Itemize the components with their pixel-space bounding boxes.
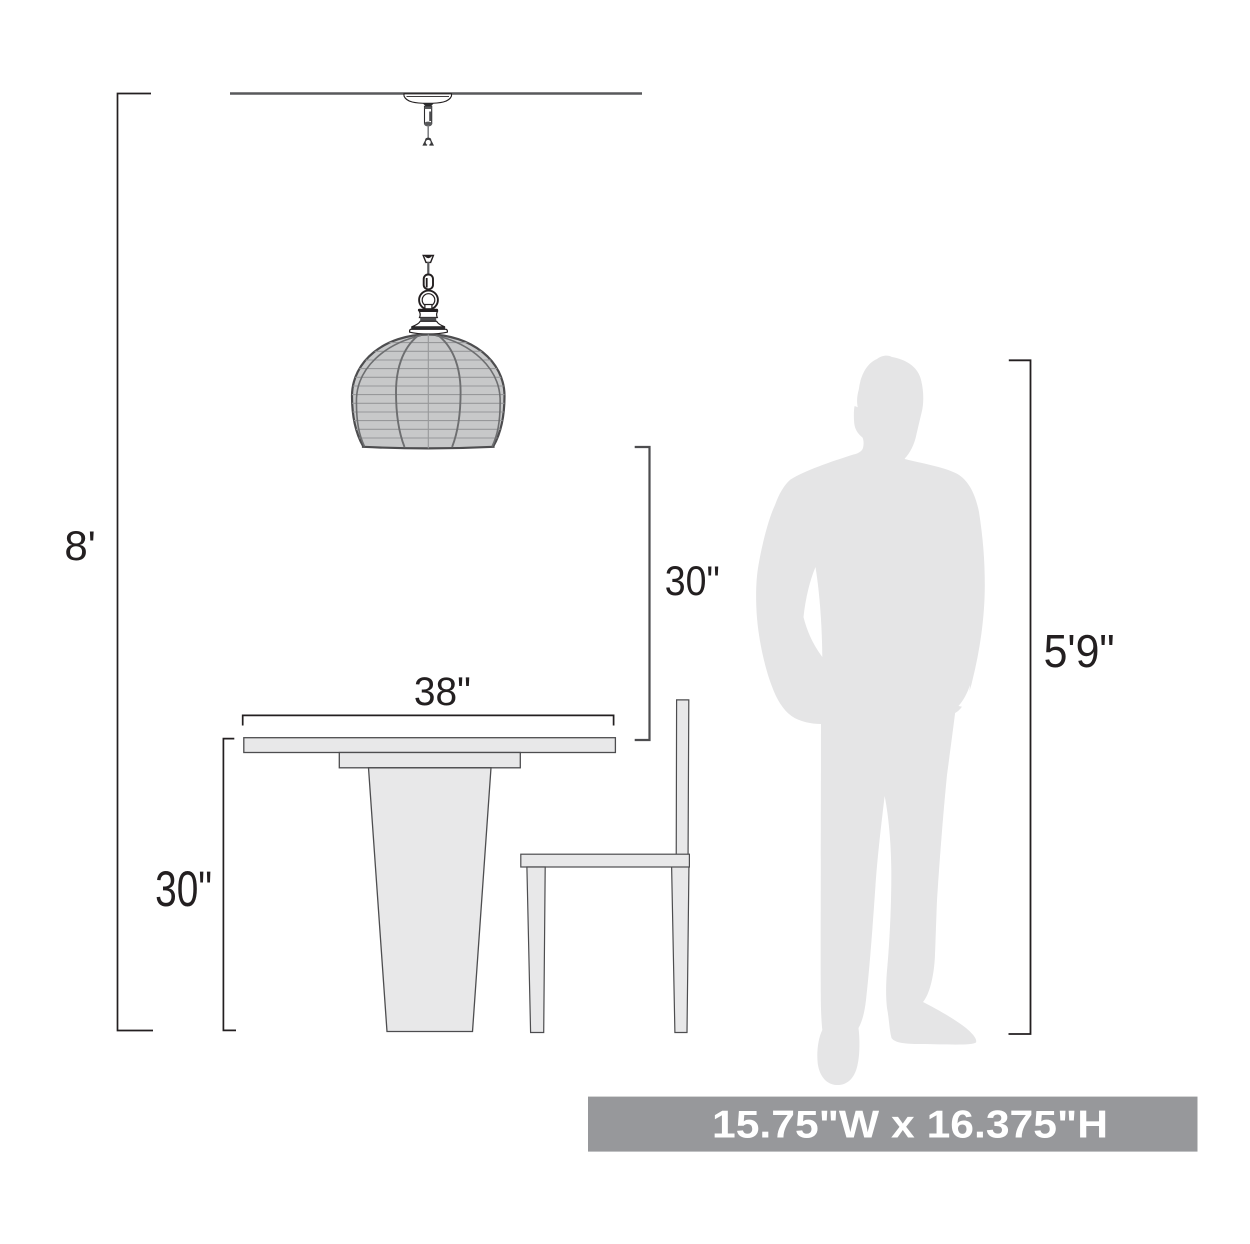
svg-text:8': 8' (64, 522, 95, 569)
svg-text:30": 30" (155, 861, 212, 917)
svg-text:5'9": 5'9" (1044, 625, 1115, 677)
svg-text:30": 30" (665, 557, 720, 604)
svg-text:38": 38" (414, 670, 471, 714)
svg-text:15.75"W x 16.375"H: 15.75"W x 16.375"H (712, 1104, 1108, 1147)
